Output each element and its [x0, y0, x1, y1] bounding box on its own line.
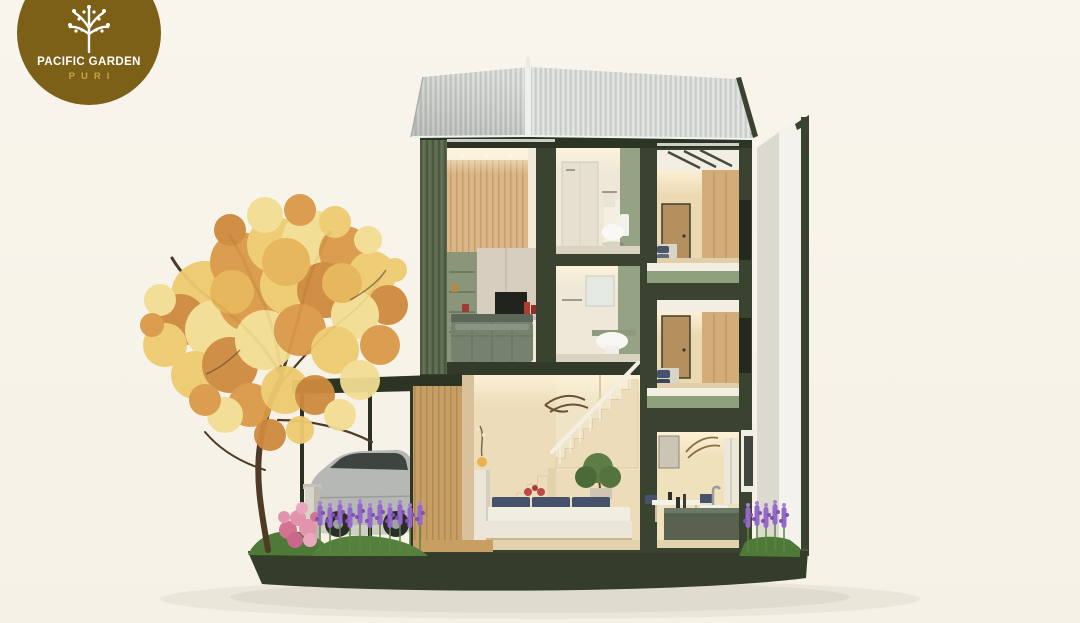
- house-cutaway-render: [0, 0, 1080, 623]
- balcony-middle: [647, 388, 739, 408]
- mirror: [586, 276, 614, 306]
- facade-window-upper: [739, 200, 751, 260]
- bedroom-top: [647, 150, 739, 283]
- master-bedroom: [447, 148, 536, 362]
- left-exterior-wall: [420, 140, 447, 374]
- tree-logo-icon: [62, 2, 116, 54]
- back-door-recess: [741, 430, 755, 492]
- bathroom-top: [556, 148, 640, 254]
- dining-kitchen: [645, 432, 739, 548]
- roof-ridge-seam: [525, 67, 531, 137]
- brand-name: PACIFIC GARDEN: [17, 56, 161, 68]
- gutter-line: [447, 139, 555, 142]
- house-cutaway: [411, 57, 758, 553]
- roof: [411, 57, 758, 146]
- tree-foliage: [140, 194, 408, 451]
- balcony-top: [647, 263, 739, 283]
- wardrobe-middle-bedroom: [702, 312, 739, 388]
- tv-screen: [495, 292, 527, 314]
- bathroom-middle: [556, 266, 640, 362]
- wardrobe-top-bedroom: [702, 170, 739, 263]
- living-room: [460, 363, 640, 550]
- base-platform: [248, 550, 808, 591]
- facade-window-lower: [739, 318, 751, 373]
- brand-subtitle: PURI: [17, 71, 161, 82]
- bed-master: [451, 314, 533, 362]
- dining-wall-art: [659, 436, 679, 468]
- bedroom-middle: [647, 300, 739, 408]
- shower: [562, 162, 598, 248]
- hero-image: PACIFIC GARDEN PURI: [0, 0, 1080, 623]
- side-wall: [757, 115, 809, 556]
- ceiling-slats: [657, 150, 739, 170]
